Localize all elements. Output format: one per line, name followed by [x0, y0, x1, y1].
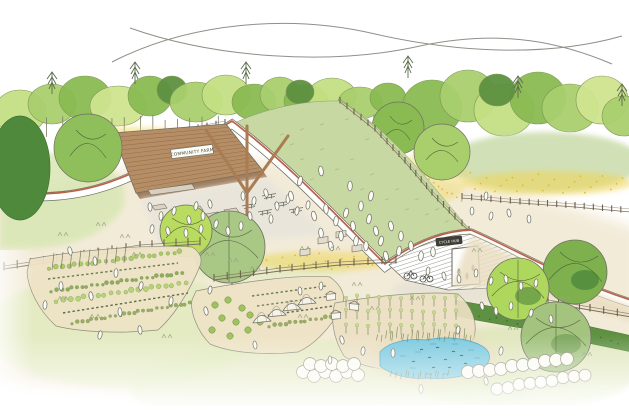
- visitor-figure: [114, 269, 118, 278]
- visitor-figure: [527, 215, 531, 223]
- visitor-figure: [399, 231, 404, 241]
- visitor-figure: [199, 225, 204, 234]
- visitor-figure: [348, 181, 353, 191]
- tree: [543, 240, 607, 304]
- visitor-figure: [519, 282, 523, 290]
- tree: [54, 114, 122, 182]
- swoosh-line-1: [112, 23, 622, 62]
- visitor-figure: [43, 301, 48, 310]
- visitor-figure: [363, 241, 368, 251]
- visitor-figure: [159, 212, 163, 221]
- visitor-figure: [269, 215, 273, 224]
- visitor-figure: [323, 204, 328, 214]
- visitor-figure: [494, 307, 498, 315]
- visitor-figure: [408, 241, 413, 251]
- illustration-frame: COMMUNITY FARM CYCLE HUB: [0, 0, 629, 418]
- visitor-figure: [470, 207, 474, 215]
- tree: [414, 124, 470, 180]
- visitor-figure: [430, 247, 435, 257]
- landscape-illustration: COMMUNITY FARM CYCLE HUB: [0, 0, 629, 418]
- visitor-figure: [418, 251, 423, 261]
- sky-swoosh-lines: [112, 23, 622, 64]
- visitor-figure: [509, 302, 513, 310]
- visitor-figure: [338, 231, 343, 241]
- visitor-figure: [184, 229, 189, 238]
- visitor-figure: [118, 308, 123, 317]
- visitor-figure: [474, 269, 478, 277]
- visitor-figure: [241, 192, 245, 201]
- visitor-figure: [59, 282, 63, 291]
- visitor-figure: [319, 282, 323, 290]
- visitor-figure: [359, 201, 364, 211]
- conifer-icon: [403, 56, 413, 78]
- visitor-figure: [201, 212, 205, 221]
- visitor-figure: [239, 222, 243, 231]
- visitor-figure: [333, 216, 338, 226]
